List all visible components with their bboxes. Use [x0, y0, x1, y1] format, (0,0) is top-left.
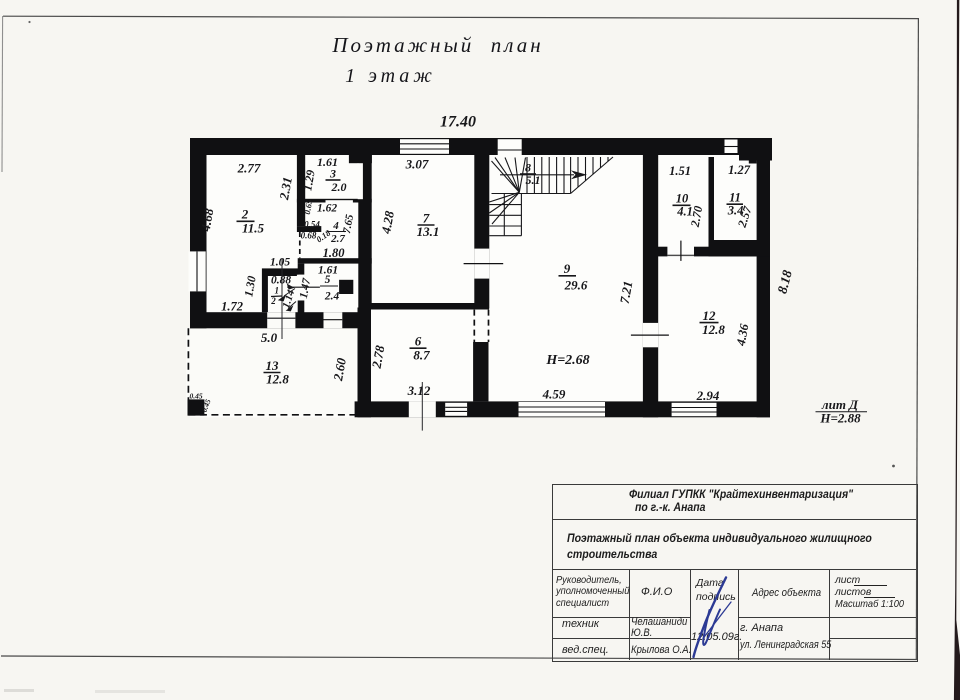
- svg-text:1.62: 1.62: [317, 203, 337, 215]
- svg-text:9: 9: [564, 261, 571, 276]
- svg-text:1.05: 1.05: [270, 257, 290, 269]
- svg-text:1: 1: [275, 286, 280, 296]
- svg-text:4: 4: [332, 220, 339, 232]
- svg-text:8.18: 8.18: [774, 268, 795, 295]
- svg-text:12.8: 12.8: [702, 322, 725, 337]
- svg-text:2: 2: [270, 296, 276, 306]
- svg-text:3.12: 3.12: [407, 383, 431, 398]
- svg-text:1.72: 1.72: [221, 300, 243, 314]
- svg-text:10: 10: [676, 192, 689, 206]
- svg-text:2.4: 2.4: [324, 291, 340, 303]
- svg-text:1.80: 1.80: [323, 246, 346, 260]
- svg-text:2.77: 2.77: [237, 161, 261, 176]
- svg-text:11.5: 11.5: [242, 221, 265, 236]
- svg-text:0.68: 0.68: [301, 231, 317, 241]
- svg-text:8.7: 8.7: [413, 348, 430, 363]
- svg-text:5.0: 5.0: [261, 330, 278, 345]
- svg-text:Н=2.68: Н=2.68: [545, 353, 589, 368]
- svg-text:13.1: 13.1: [417, 224, 440, 239]
- svg-text:Н=2.88: Н=2.88: [819, 411, 861, 426]
- svg-text:2: 2: [241, 207, 249, 222]
- svg-text:3.07: 3.07: [405, 157, 429, 172]
- svg-text:2.0: 2.0: [331, 180, 347, 194]
- svg-text:5.1: 5.1: [526, 173, 541, 187]
- svg-text:1.51: 1.51: [669, 164, 691, 178]
- svg-text:3: 3: [329, 167, 336, 181]
- svg-text:12.8: 12.8: [266, 371, 289, 386]
- svg-text:12: 12: [703, 308, 717, 323]
- svg-text:17.40: 17.40: [440, 114, 476, 131]
- svg-text:11: 11: [729, 191, 741, 205]
- svg-text:0.54: 0.54: [304, 220, 320, 230]
- svg-text:4.59: 4.59: [542, 387, 566, 402]
- svg-text:0.45: 0.45: [189, 392, 202, 401]
- svg-text:2.7: 2.7: [330, 233, 345, 245]
- svg-text:2.94: 2.94: [696, 388, 720, 403]
- svg-text:6: 6: [415, 334, 422, 349]
- svg-text:1.27: 1.27: [728, 163, 751, 177]
- svg-text:29.6: 29.6: [564, 278, 588, 293]
- svg-text:5: 5: [325, 274, 331, 286]
